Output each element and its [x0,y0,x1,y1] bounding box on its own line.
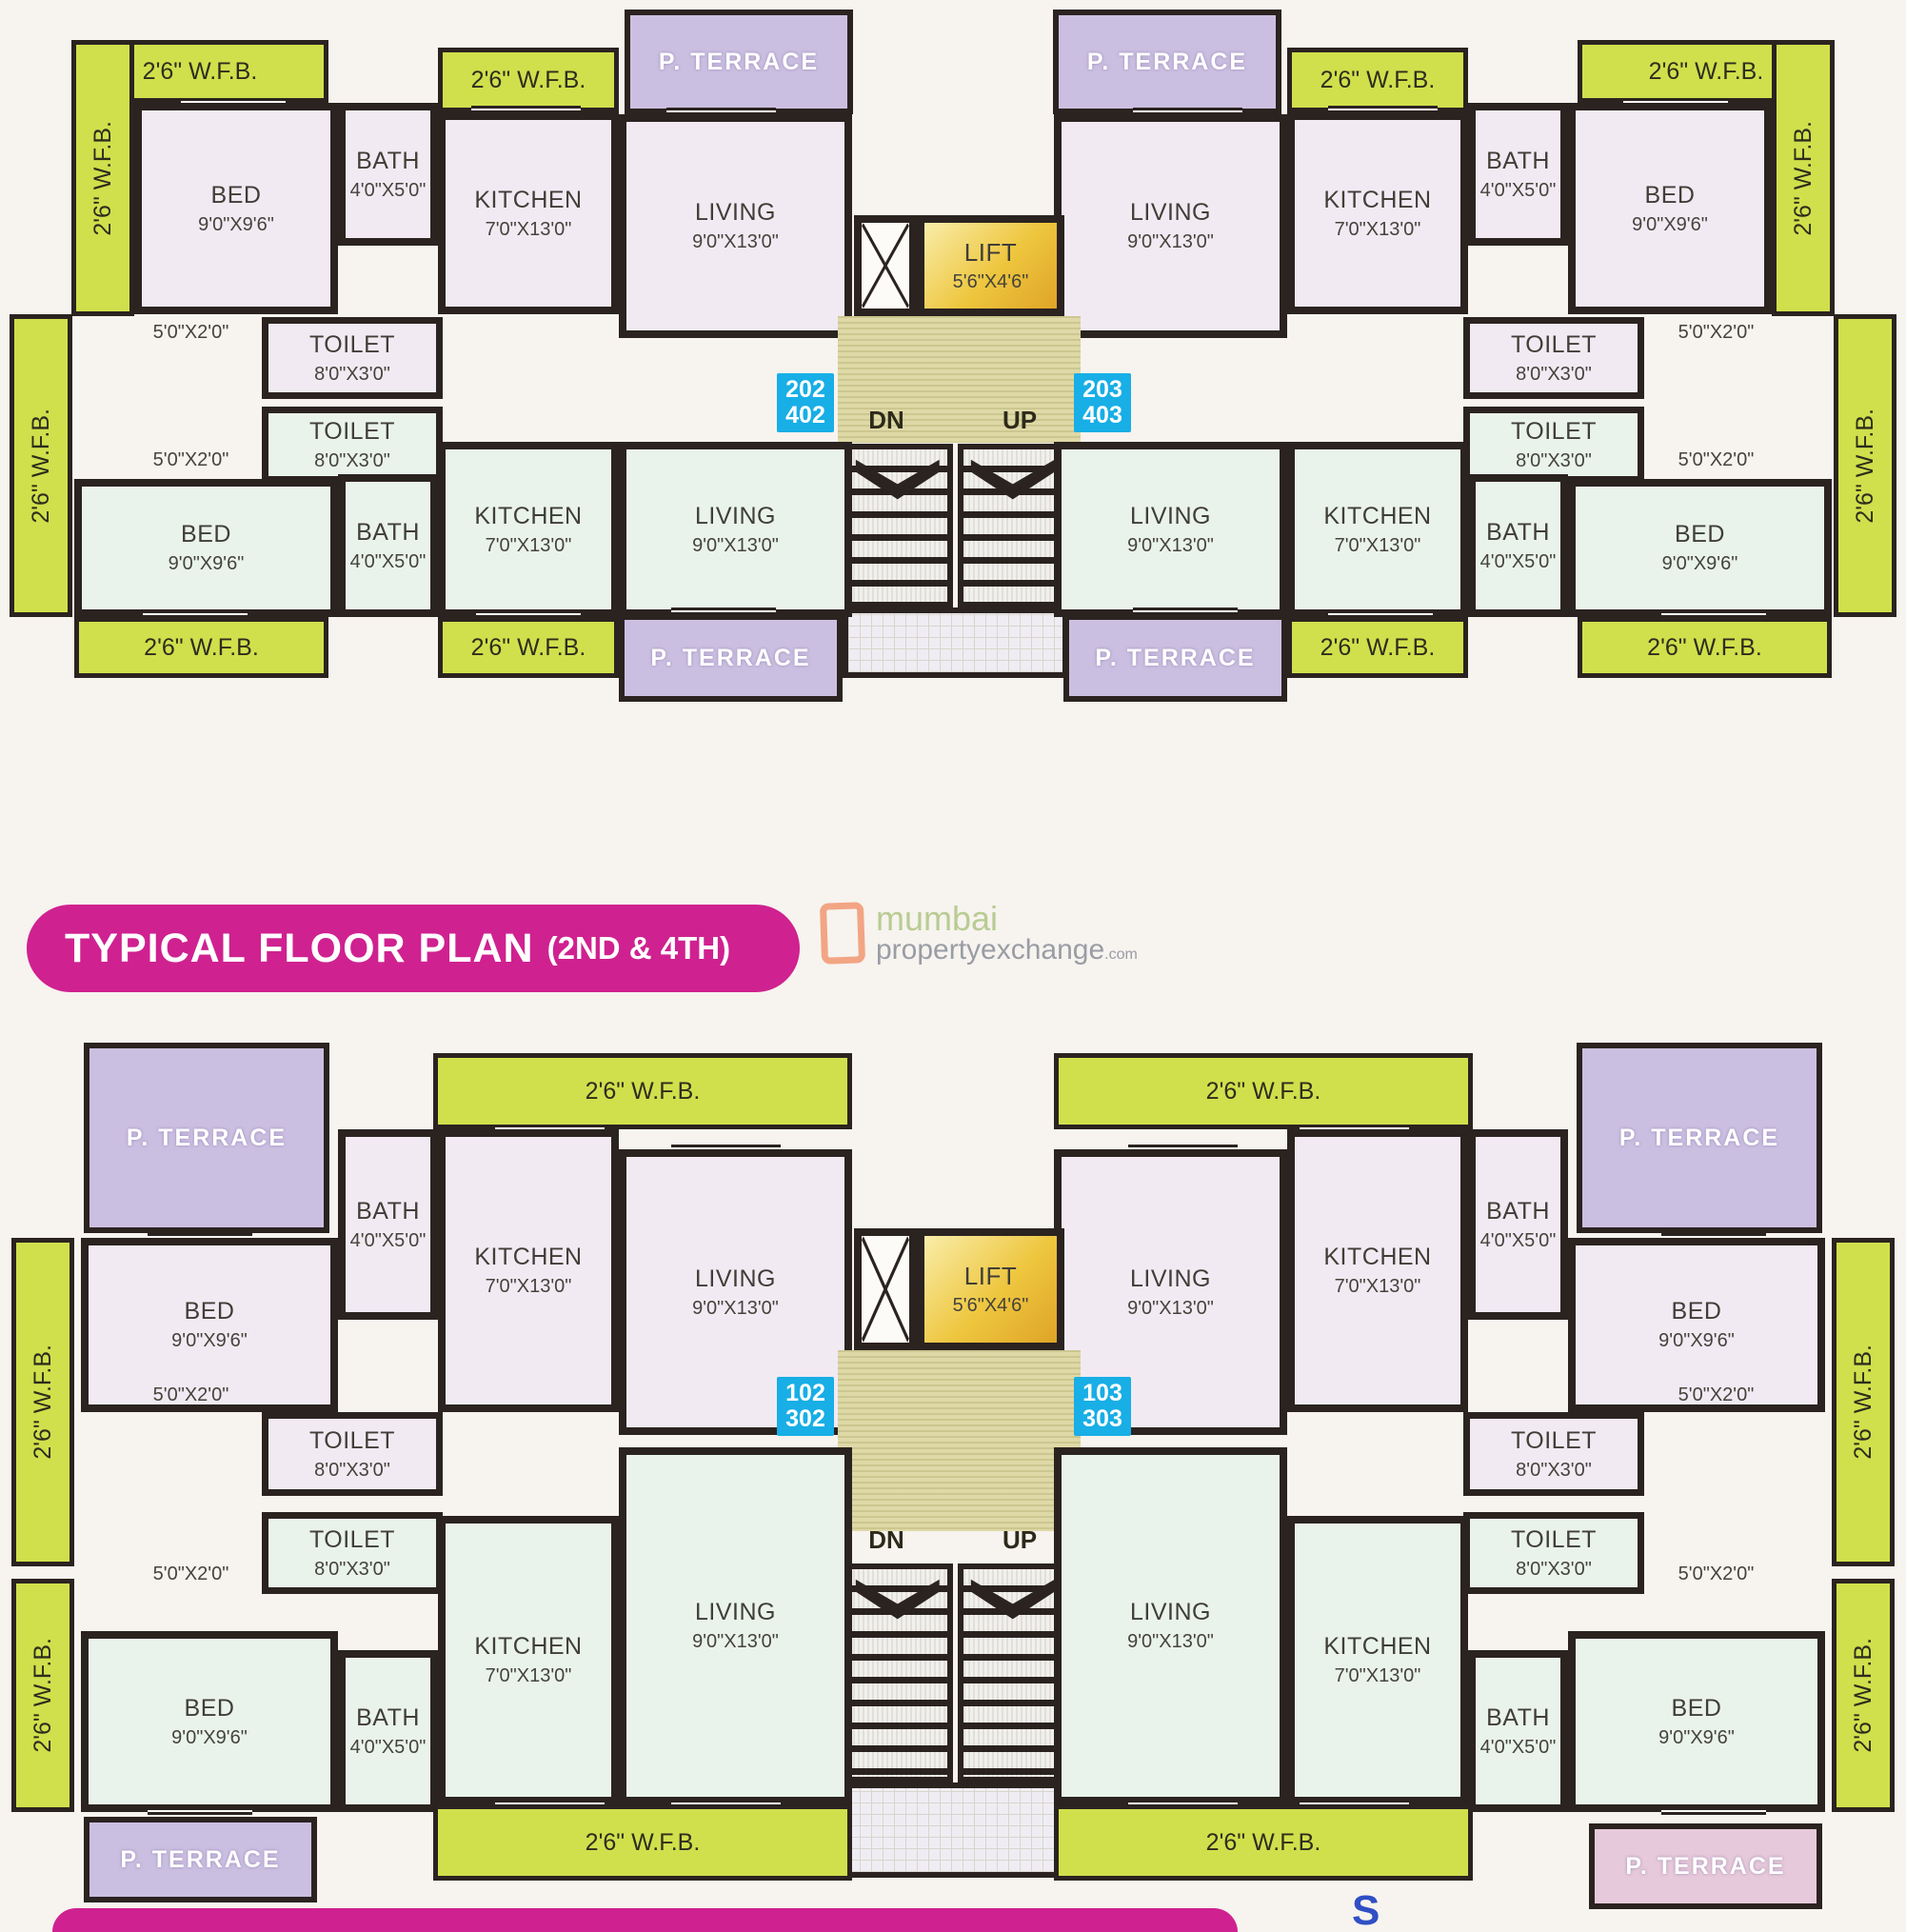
label-text: UP [1003,1525,1037,1555]
room-label: BATH [1486,1704,1550,1732]
room-dimension: 9'0"X9'6" [171,1330,248,1352]
window [671,1145,781,1152]
window [1128,1800,1238,1807]
title-floors-text: (2ND & 4TH) [547,930,731,966]
unit-number: 303 [1082,1406,1122,1432]
unit-number: 103 [1082,1381,1122,1406]
wfb-right-lower-v: 2'6" W.F.B. [1832,1579,1895,1812]
unit-badge-102-302: 102302 [777,1377,834,1436]
floor-plan-sheet: 2'6" W.F.B.2'6" W.F.B.2'6" W.F.B.P. TERR… [0,0,1906,1932]
room-dimension: 4'0"X5'0" [1480,1230,1557,1252]
window [671,1800,781,1807]
label-text: 5'0"X2'0" [153,1384,229,1406]
label-text: P. TERRACE [127,1125,287,1152]
watermark-logo: mumbai propertyexchange .com [821,903,1138,966]
room-dimension: 9'0"X9'6" [171,1727,248,1749]
label-text: 2'6" W.F.B. [1850,1344,1877,1460]
duct-shaft [854,1228,917,1350]
label-text: 5'0"X2'0" [153,1564,229,1585]
bath-upper-right: BATH4'0"X5'0" [1468,1129,1568,1320]
label-text: 2'6" W.F.B. [1850,1638,1877,1753]
room-dimension: 4'0"X5'0" [1480,1737,1557,1759]
terrace-top-right: P. TERRACE [1577,1043,1822,1233]
label-text: 2'6" W.F.B. [30,1638,57,1753]
wfb-top-wide-right: 2'6" W.F.B. [1054,1053,1473,1129]
logo-word-mumbai: mumbai [876,903,1138,935]
window [1128,1145,1238,1152]
room-label: KITCHEN [1323,1633,1431,1661]
room-label: LIVING [695,1265,776,1293]
room-label: TOILET [309,1427,395,1455]
room-dimension: 9'0"X9'6" [1658,1727,1735,1749]
toilet-upper-left: TOILET8'0"X3'0" [262,1412,443,1496]
stair-dn-label: DN [857,1524,916,1556]
room-dimension: 8'0"X3'0" [1516,1559,1592,1581]
window [148,1233,252,1241]
label-text: 2'6" W.F.B. [1206,1829,1321,1857]
room-dimension: 9'0"X13'0" [1127,1631,1214,1653]
room-dimension: 8'0"X3'0" [314,1559,390,1581]
passage-upper-right: 5'0"X2'0" [1647,1381,1785,1409]
unit-number: 102 [785,1381,825,1406]
unit-number: 302 [785,1406,825,1432]
lobby [838,1350,1081,1531]
room-label: KITCHEN [474,1633,582,1661]
window [148,1807,252,1815]
label-text: 2'6" W.F.B. [586,1078,701,1105]
bottom-banner-partial [52,1908,1238,1932]
kitchen-lower-right: KITCHEN7'0"X13'0" [1287,1516,1468,1804]
room-dimension: 7'0"X13'0" [486,1665,572,1687]
logo-frame-icon [820,902,865,965]
window [1300,1125,1409,1132]
logo-suffix-com: .com [1104,946,1138,964]
stair-direction-arrow-icon [969,1575,1057,1621]
room-label: BED [1672,1695,1722,1723]
passage-lower-right: 5'0"X2'0" [1647,1560,1785,1588]
room-label: KITCHEN [1323,1244,1431,1271]
label-text: 2'6" W.F.B. [586,1829,701,1857]
room-label: LIVING [1130,1265,1211,1293]
living-lower-left: LIVING9'0"X13'0" [619,1447,852,1804]
room-label: TOILET [1511,1427,1597,1455]
bed-lower-left: BED9'0"X9'6" [81,1631,338,1812]
unit-badge-103-303: 103303 [1074,1377,1131,1436]
toilet-lower-left: TOILET8'0"X3'0" [262,1512,443,1594]
bath-upper-left: BATH4'0"X5'0" [338,1129,438,1320]
wfb-left-lower-v: 2'6" W.F.B. [11,1579,74,1812]
bath-lower-right: BATH4'0"X5'0" [1468,1650,1568,1812]
title-text: TYPICAL FLOOR PLAN [65,926,534,972]
lift-dimension: 5'6"X4'6" [953,1295,1029,1317]
living-lower-right: LIVING9'0"X13'0" [1054,1447,1287,1804]
label-text: P. TERRACE [1625,1853,1785,1881]
room-dimension: 4'0"X5'0" [350,1230,427,1252]
kitchen-lower-left: KITCHEN7'0"X13'0" [438,1516,619,1804]
room-dimension: 8'0"X3'0" [1516,1460,1592,1482]
logo-word-propertyexchange: propertyexchange [876,935,1104,966]
room-dimension: 9'0"X13'0" [1127,1298,1214,1320]
room-dimension: 8'0"X3'0" [314,1460,390,1482]
room-dimension: 4'0"X5'0" [350,1737,427,1759]
window [1661,1807,1766,1815]
label-text: P. TERRACE [120,1846,280,1874]
toilet-upper-right: TOILET8'0"X3'0" [1463,1412,1644,1496]
wfb-left-upper-v: 2'6" W.F.B. [11,1238,74,1566]
room-dimension: 9'0"X9'6" [1658,1330,1735,1352]
room-label: BATH [356,1704,420,1732]
label-text: 2'6" W.F.B. [1206,1078,1321,1105]
room-dimension: 9'0"X13'0" [692,1298,779,1320]
stair-flight-left [843,1564,953,1783]
lift-label: LIFT [964,1262,1017,1291]
label-text: 5'0"X2'0" [1678,1384,1755,1406]
bath-lower-left: BATH4'0"X5'0" [338,1650,438,1812]
bed-lower-right: BED9'0"X9'6" [1568,1631,1825,1812]
kitchen-upper-left: KITCHEN7'0"X13'0" [438,1129,619,1412]
lift: LIFT5'6"X4'6" [917,1228,1064,1350]
terrace-bottom-left: P. TERRACE [84,1817,317,1902]
compass-s-label: S [1352,1887,1380,1932]
label-text: 2'6" W.F.B. [30,1344,57,1460]
stair-landing [843,1783,1068,1878]
window [495,1800,605,1807]
toilet-lower-right: TOILET8'0"X3'0" [1463,1512,1644,1594]
window [1300,1800,1409,1807]
passage-lower-left: 5'0"X2'0" [122,1560,260,1588]
kitchen-upper-right: KITCHEN7'0"X13'0" [1287,1129,1468,1412]
stair-direction-arrow-icon [854,1575,942,1621]
room-label: KITCHEN [474,1244,582,1271]
room-label: BATH [356,1198,420,1225]
logo-text: mumbai propertyexchange .com [876,903,1138,966]
room-label: LIVING [1130,1599,1211,1626]
window [1661,1233,1766,1241]
wfb-top-wide-left: 2'6" W.F.B. [433,1053,852,1129]
room-dimension: 7'0"X13'0" [1335,1665,1421,1687]
room-dimension: 7'0"X13'0" [486,1276,572,1298]
label-text: 5'0"X2'0" [1678,1564,1755,1585]
wfb-right-upper-v: 2'6" W.F.B. [1832,1238,1895,1566]
room-label: BED [1672,1298,1722,1325]
label-text: DN [868,1525,904,1555]
terrace-bottom-right: P. TERRACE [1589,1823,1822,1909]
passage-upper-left: 5'0"X2'0" [122,1381,260,1409]
title-banner: TYPICAL FLOOR PLAN (2ND & 4TH) [27,905,800,992]
wfb-bottom-wide-right: 2'6" W.F.B. [1054,1804,1473,1881]
stair-up-label: UP [990,1524,1049,1556]
room-label: BED [185,1695,235,1723]
label-text: P. TERRACE [1619,1125,1779,1152]
room-label: TOILET [309,1526,395,1554]
room-dimension: 7'0"X13'0" [1335,1276,1421,1298]
room-label: LIVING [695,1599,776,1626]
room-label: TOILET [1511,1526,1597,1554]
room-dimension: 9'0"X13'0" [692,1631,779,1653]
stair-flight-right [958,1564,1068,1783]
shaft-x-icon [862,1236,909,1343]
wfb-bottom-wide-left: 2'6" W.F.B. [433,1804,852,1881]
room-label: BATH [1486,1198,1550,1225]
terrace-top-left: P. TERRACE [84,1043,329,1233]
room-label: BED [185,1298,235,1325]
window [495,1125,605,1132]
